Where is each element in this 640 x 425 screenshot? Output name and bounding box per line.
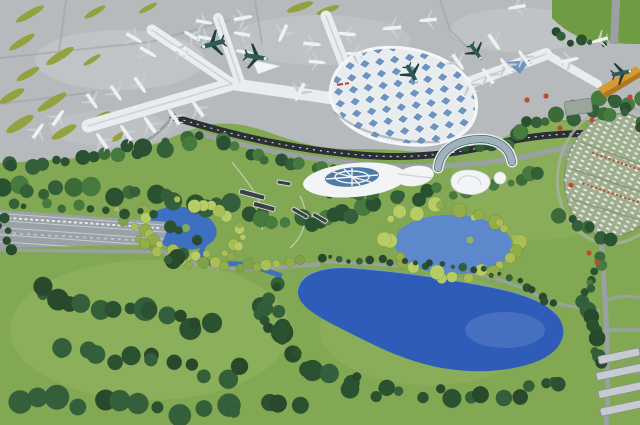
tree-cluster	[240, 234, 246, 240]
tree-cluster	[292, 348, 302, 358]
tree-cluster	[74, 200, 85, 211]
tree-cluster	[572, 220, 583, 231]
tree-cluster	[443, 389, 462, 408]
tree-cluster	[71, 294, 90, 313]
tree-cluster	[105, 301, 122, 318]
tree-cluster	[609, 95, 622, 108]
tree-cluster	[234, 242, 243, 251]
tree-cluster	[81, 177, 100, 196]
tree-cluster	[328, 255, 332, 259]
tree-cluster	[436, 201, 445, 210]
tree-cluster	[260, 260, 271, 271]
tree-cluster	[197, 370, 211, 384]
tree-cluster	[134, 139, 152, 157]
tree-cluster	[531, 117, 542, 128]
tree-cluster	[138, 208, 144, 214]
red-tree	[594, 259, 599, 264]
tree-cluster	[581, 288, 589, 296]
tree-cluster	[260, 156, 269, 165]
meadow-light-patch	[10, 260, 290, 400]
tree-cluster	[320, 364, 339, 383]
tree-cluster	[139, 238, 150, 249]
tree-cluster	[3, 237, 11, 245]
tree-cluster	[203, 250, 210, 257]
tree-cluster	[5, 227, 12, 234]
tree-cluster	[567, 40, 574, 47]
tree-cluster	[131, 223, 138, 230]
tree-cluster	[0, 213, 10, 223]
tree-cluster	[440, 261, 445, 266]
red-tree	[589, 117, 594, 122]
scene-svg	[0, 0, 640, 425]
tree-cluster	[61, 157, 70, 166]
tree-cluster	[489, 273, 494, 278]
tree-cluster	[141, 302, 157, 318]
tree-cluster	[48, 180, 63, 195]
tree-cluster	[130, 187, 140, 197]
tree-cluster	[436, 384, 445, 393]
tree-cluster	[9, 390, 32, 413]
tree-cluster	[152, 401, 164, 413]
tree-cluster	[576, 35, 587, 46]
tree-cluster	[371, 391, 382, 402]
tree-cluster	[185, 261, 193, 269]
tree-cluster	[402, 258, 408, 264]
tree-cluster	[548, 107, 564, 123]
tree-cluster	[352, 372, 361, 381]
tree-cluster	[162, 138, 170, 146]
airport-aerial-rendering	[0, 0, 640, 425]
tree-cluster	[122, 346, 141, 365]
tree-cluster	[379, 380, 395, 396]
tree-cluster	[243, 258, 254, 269]
upper-lake-islet	[467, 237, 474, 244]
tree-cluster	[585, 222, 595, 232]
tree-cluster	[393, 205, 407, 219]
tree-cluster	[426, 259, 433, 266]
tree-cluster	[531, 167, 544, 180]
red-tree	[543, 93, 548, 98]
tree-cluster	[603, 108, 616, 121]
tree-cluster	[394, 386, 403, 395]
small-round-pod	[494, 172, 506, 184]
tree-cluster	[164, 255, 173, 264]
tree-cluster	[272, 322, 290, 340]
lake-sun-glint	[465, 312, 545, 348]
tree-cluster	[58, 205, 66, 213]
tree-cluster	[387, 215, 394, 222]
tree-cluster	[38, 189, 49, 200]
tree-cluster	[87, 205, 94, 212]
tree-cluster	[87, 345, 106, 364]
tree-cluster	[449, 191, 457, 199]
tree-cluster	[410, 207, 424, 221]
tree-cluster	[21, 204, 27, 210]
tree-cluster	[6, 244, 17, 255]
tree-cluster	[496, 390, 512, 406]
tree-cluster	[45, 385, 70, 410]
tree-cluster	[472, 386, 489, 403]
tree-cluster	[109, 390, 130, 411]
tree-cluster	[505, 253, 516, 264]
tree-cluster	[272, 283, 281, 292]
tree-cluster	[447, 272, 458, 283]
tree-cluster	[127, 393, 148, 414]
tree-cluster	[149, 210, 157, 218]
tree-cluster	[189, 318, 201, 330]
tree-cluster	[541, 117, 549, 125]
tree-cluster	[159, 307, 177, 325]
tree-cluster	[379, 255, 387, 263]
tree-cluster	[217, 136, 231, 150]
tree-cluster	[386, 259, 393, 266]
tree-cluster	[188, 200, 201, 213]
red-tree	[568, 182, 573, 187]
tree-cluster	[430, 265, 445, 280]
tree-cluster	[167, 355, 182, 370]
tree-cluster	[193, 237, 201, 245]
tree-cluster	[230, 141, 239, 150]
tree-cluster	[144, 353, 157, 366]
tree-cluster	[336, 256, 342, 262]
red-tree	[627, 94, 632, 99]
tree-cluster	[231, 358, 248, 375]
tree-cluster	[186, 359, 198, 371]
tree-cluster	[102, 207, 109, 214]
tree-cluster	[481, 266, 487, 272]
tree-cluster	[285, 258, 295, 268]
tree-cluster	[105, 188, 124, 207]
tree-cluster	[413, 260, 418, 265]
tree-cluster	[6, 160, 17, 171]
tree-cluster	[518, 278, 523, 283]
tree-cluster	[451, 265, 455, 269]
tree-cluster	[590, 268, 598, 276]
tree-cluster	[169, 404, 191, 425]
tree-cluster	[452, 203, 467, 218]
tree-cluster	[42, 199, 51, 208]
tree-cluster	[506, 274, 513, 281]
tree-cluster	[557, 32, 566, 41]
tree-cluster	[497, 272, 501, 276]
tree-cluster	[318, 254, 327, 263]
gtc-west-pod	[303, 178, 323, 190]
tree-cluster	[195, 131, 204, 140]
tree-cluster	[551, 377, 565, 391]
tree-cluster	[459, 263, 467, 271]
tree-cluster	[417, 392, 428, 403]
tree-cluster	[523, 380, 534, 391]
tree-cluster	[295, 255, 305, 265]
tree-cluster	[269, 395, 287, 413]
tree-cluster	[65, 178, 84, 197]
tree-cluster	[621, 108, 629, 116]
tree-cluster	[152, 247, 162, 257]
tree-cluster	[20, 185, 33, 198]
tree-cluster	[182, 136, 197, 151]
tree-cluster	[604, 233, 618, 247]
tree-cluster	[292, 397, 309, 414]
tree-cluster	[589, 330, 605, 346]
tree-cluster	[272, 305, 285, 318]
tree-cluster	[121, 139, 134, 152]
tree-cluster	[356, 258, 363, 265]
tree-cluster	[280, 217, 290, 227]
tree-cluster	[228, 406, 240, 418]
tree-cluster	[474, 209, 485, 220]
tree-cluster	[550, 299, 557, 306]
tree-cluster	[634, 91, 640, 106]
tree-cluster	[265, 304, 274, 313]
red-tree	[586, 250, 591, 255]
red-tree	[557, 125, 562, 130]
tree-cluster	[521, 116, 532, 127]
tree-cluster	[107, 355, 122, 370]
tree-cluster	[500, 224, 508, 232]
tree-cluster	[52, 156, 60, 164]
tree-cluster	[52, 338, 71, 357]
tree-cluster	[470, 267, 477, 274]
tree-cluster	[513, 389, 528, 404]
tree-cluster	[293, 157, 305, 169]
red-tree	[524, 97, 529, 102]
tree-cluster	[175, 226, 183, 234]
tree-cluster	[365, 256, 374, 265]
tree-cluster	[508, 180, 515, 187]
tree-cluster	[196, 400, 213, 417]
tree-cluster	[174, 196, 180, 202]
tree-cluster	[346, 259, 350, 263]
tree-cluster	[219, 261, 229, 271]
tree-cluster	[587, 40, 592, 45]
tree-cluster	[202, 313, 222, 333]
tree-cluster	[198, 257, 210, 269]
tree-cluster	[272, 260, 280, 268]
tree-cluster	[464, 273, 474, 283]
tree-cluster	[227, 252, 235, 260]
amoeba-pod-building	[451, 170, 490, 195]
tree-cluster	[551, 208, 566, 223]
tree-cluster	[431, 183, 441, 193]
tree-cluster	[70, 399, 87, 416]
tree-cluster	[88, 151, 99, 162]
tree-cluster	[265, 216, 278, 229]
tree-cluster	[396, 191, 405, 200]
tree-cluster	[36, 158, 49, 171]
tree-cluster	[377, 232, 392, 247]
tree-cluster	[236, 221, 243, 228]
tree-cluster	[540, 297, 548, 305]
tree-cluster	[9, 199, 19, 209]
tree-cluster	[528, 286, 535, 293]
tree-cluster	[76, 150, 91, 165]
lake-islet	[182, 224, 190, 232]
tree-cluster	[119, 209, 130, 220]
tree-cluster	[114, 207, 119, 212]
